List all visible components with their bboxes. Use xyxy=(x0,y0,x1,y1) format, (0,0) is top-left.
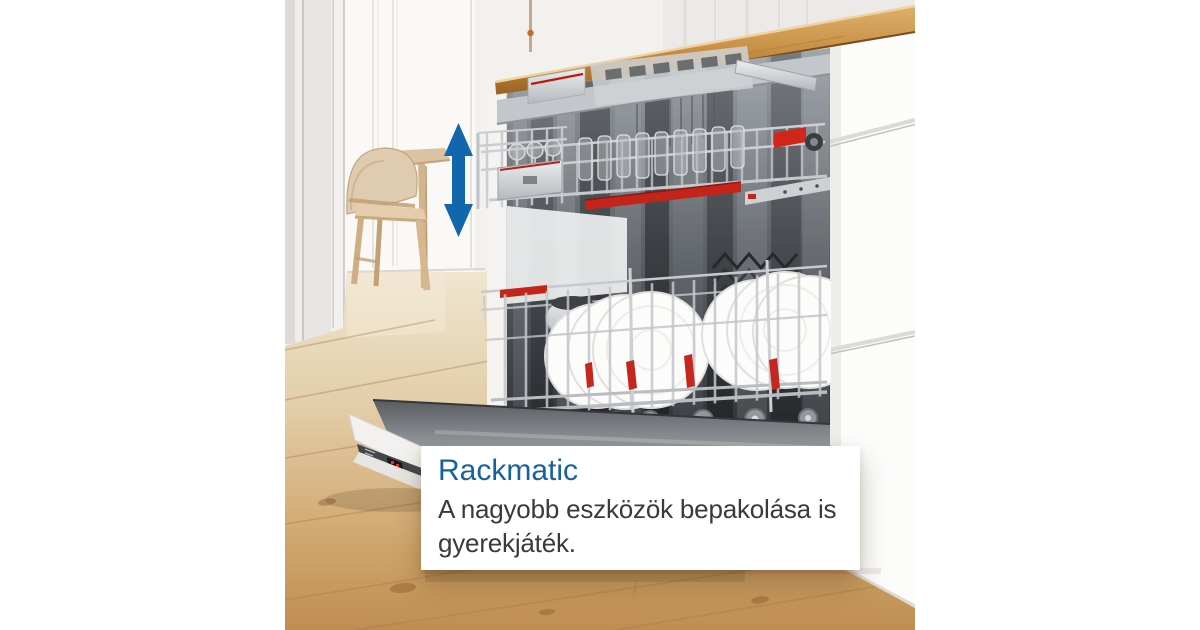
caption-body-line-1: A nagyobb eszközök bepakolása is xyxy=(438,492,852,526)
caption-body: A nagyobb eszközök bepakolása is gyerekj… xyxy=(438,492,852,560)
doorway-trim xyxy=(285,0,345,344)
caption-body-line-2: gyerekjáték. xyxy=(438,526,852,560)
upper-rack xyxy=(478,124,830,210)
caption-title: Rackmatic xyxy=(438,452,852,490)
promo-image: Rackmatic A nagyobb eszközök bepakolása … xyxy=(0,0,1200,630)
caption-card: Rackmatic A nagyobb eszközök bepakolása … xyxy=(421,446,860,570)
